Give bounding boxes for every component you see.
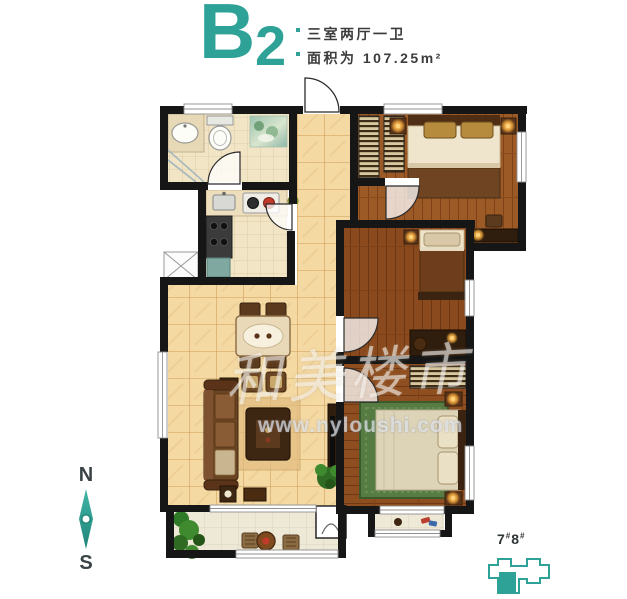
compass-needle-icon [73,488,99,550]
window [384,104,442,114]
kitchen-fridge [207,258,230,277]
window [465,280,474,316]
bed-blanket [420,250,464,292]
building-footprint-icon [485,552,553,596]
bed-blanket [408,168,500,198]
building-number-label: 7#8# [497,531,526,547]
pillow [424,122,456,138]
ac-platform [164,252,198,280]
unit-location-marker [499,572,516,592]
sofa-armrest [204,380,238,390]
window [465,446,474,500]
kitchen-hob-cabinet [206,216,232,258]
wardrobe [359,116,379,178]
compass-north-label: N [68,464,104,487]
floorplan-page: B 2 三室两厅一卫 面积为 107.25m² [0,0,627,599]
window [380,506,444,514]
pillow [461,122,493,138]
wardrobe [410,366,466,388]
toilet-tank [207,116,233,125]
compass-south-label: S [68,552,104,575]
laundry-nook [250,116,287,147]
window [236,550,338,558]
window [184,104,232,114]
window [210,505,316,512]
pillow [438,416,458,448]
entry-door [305,78,339,112]
tv [330,416,335,466]
pillow [438,452,458,484]
window [375,530,440,537]
bench [244,488,266,501]
pillow [424,233,460,246]
stool [414,338,427,351]
bed-footboard [418,292,466,300]
kitchen-sink [213,195,235,210]
window [158,352,167,438]
window [517,132,526,182]
desk-chair [486,215,502,227]
toilet-bowl [209,126,231,150]
